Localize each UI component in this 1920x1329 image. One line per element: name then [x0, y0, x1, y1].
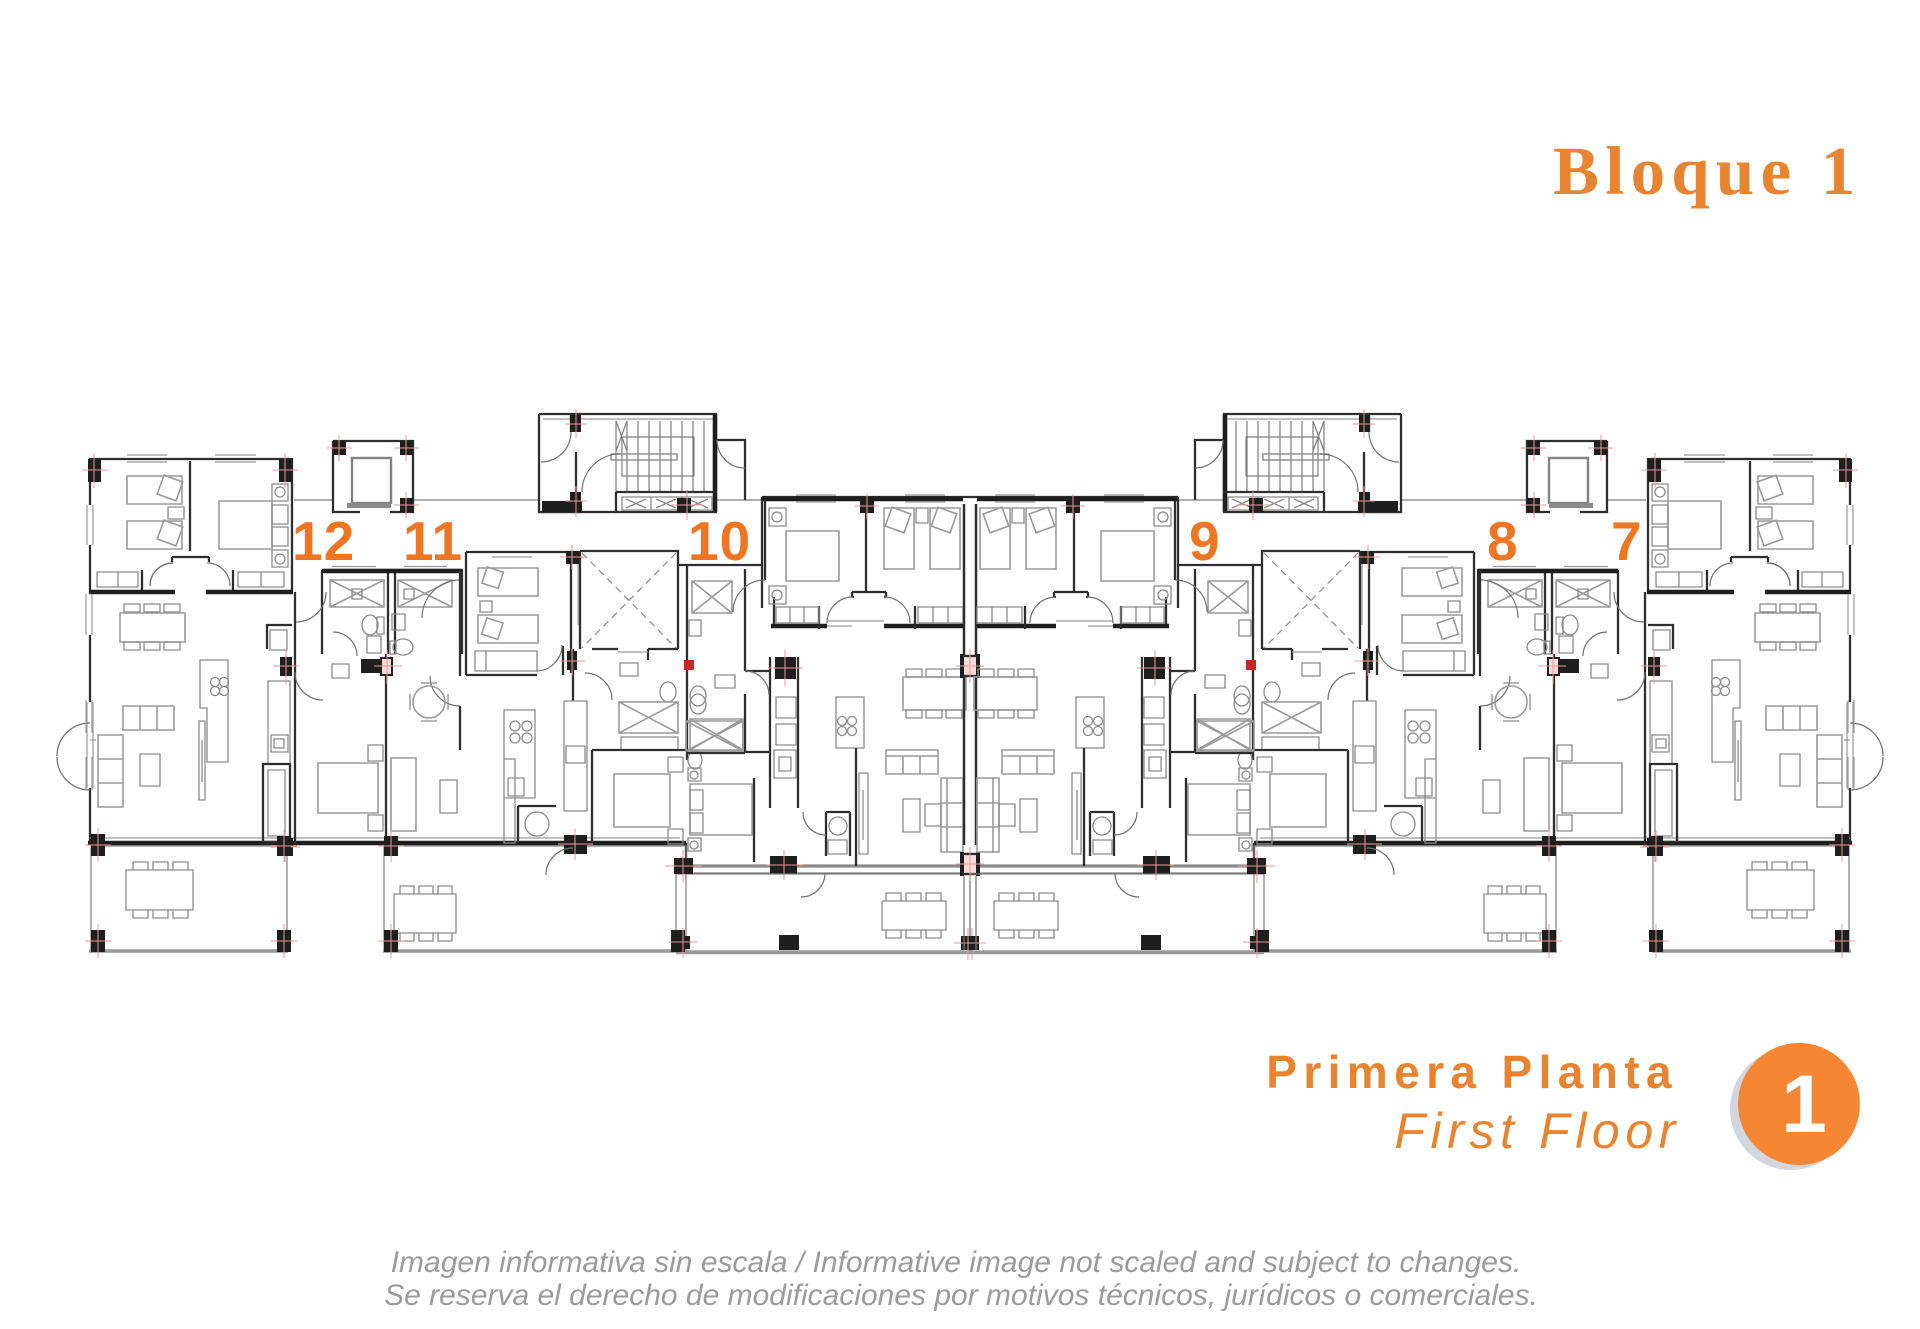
svg-text:Primera Planta: Primera Planta — [1266, 1046, 1678, 1098]
svg-text:Se reserva el derecho de modif: Se reserva el derecho de modificaciones … — [384, 1279, 1538, 1312]
svg-text:9: 9 — [1189, 510, 1221, 572]
svg-text:8: 8 — [1487, 510, 1519, 572]
svg-text:Imagen informativa sin escala: Imagen informativa sin escala / Informat… — [391, 1246, 1522, 1279]
svg-text:7: 7 — [1611, 510, 1643, 572]
svg-text:11: 11 — [403, 510, 463, 572]
svg-text:10: 10 — [688, 510, 751, 572]
svg-text:1: 1 — [1781, 1059, 1827, 1150]
svg-text:First Floor: First Floor — [1394, 1103, 1681, 1159]
svg-text:Bloque 1: Bloque 1 — [1553, 133, 1861, 209]
svg-text:12: 12 — [292, 510, 355, 572]
